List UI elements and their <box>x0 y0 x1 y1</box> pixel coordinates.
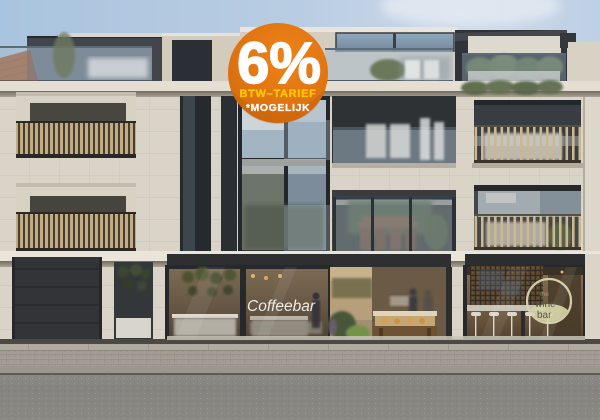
svg-text:*MOGELIJK: *MOGELIJK <box>246 102 310 114</box>
svg-text:6%: 6% <box>237 31 321 96</box>
svg-text:the: the <box>540 291 549 298</box>
svg-text:BTW–TARIEF: BTW–TARIEF <box>239 88 316 100</box>
